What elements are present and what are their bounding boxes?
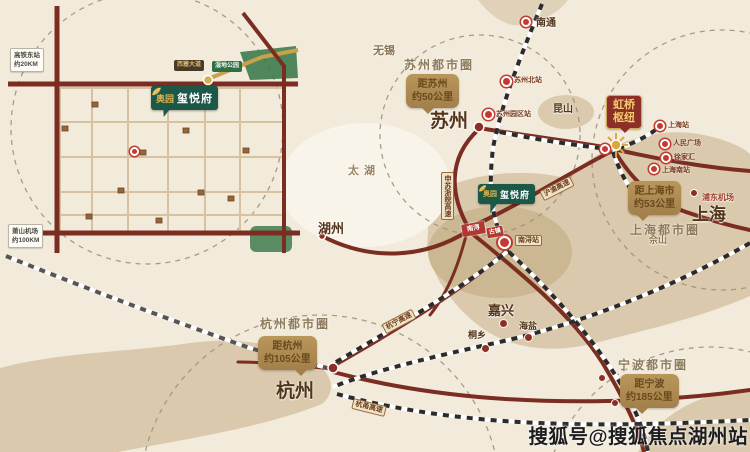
station-dot-shanghai [655,121,665,131]
callout-ningbo-line1: 距宁波 [626,378,673,391]
haiyan-dot [524,333,533,342]
inset-road-plate: 西塞大道 [174,60,204,71]
inset-project-banner: 奥园 玺悦府 [151,86,218,110]
callout-hangzhou-pointer [294,369,308,383]
station-plate-nanxun: 南浔站 [515,235,542,246]
inset-building-icons [62,102,249,223]
callout-suzhou-line2: 约50公里 [412,91,453,104]
station-dot-suzhou-north [501,76,512,87]
pudong-airport-dot [690,189,698,197]
callout-ningbo-pointer [635,407,649,421]
city-label-wuxi: 无锡 [373,42,395,58]
inset-km-station-dist: 约20KM [14,60,40,69]
road-hangzhou-east [333,372,750,401]
callout-shanghai-pointer [636,214,650,228]
location-map: 高铁东站 约20KM 萧山机场 约100KM 西塞大道 湿地公园 奥园 玺悦府 … [0,0,750,452]
station-label-shanghai-south: 上海南站 [662,165,690,175]
city-label-suzhou: 苏州 [430,106,468,133]
callout-shanghai: 距上海市 约53公里 [628,181,681,215]
city-label-pudong-airport: 浦东机场 [702,192,734,203]
callout-shanghai-line1: 距上海市 [634,185,675,198]
nantong-station-dot [521,17,531,27]
callout-ningbo-line2: 约185公里 [626,391,673,404]
hongqiao-hub-box: 虹桥 枢纽 [606,95,642,129]
callout-hangzhou: 距杭州 约105公里 [258,336,317,370]
callout-ningbo: 距宁波 约185公里 [620,374,679,408]
project-banner: 奥园 玺悦府 [478,184,535,204]
leaf-logo-icon [151,86,162,97]
inset-km-airport-dist: 约100KM [12,236,39,245]
station-label-suzhou-park: 苏州园区站 [496,109,531,119]
lake-taihu [280,123,450,247]
inset-km-box-station: 高铁东站 约20KM [10,48,44,72]
callout-suzhou-line1: 距苏州 [412,78,453,91]
city-label-shanghai: 上海 [692,200,726,225]
inset-poi-station-dot [130,147,139,156]
metro-label-suzhou: 苏州都市圈 [404,56,474,73]
callout-hangzhou-line2: 约105公里 [264,353,311,366]
station-label-shanghai: 上海站 [668,120,689,130]
station-label-xujiahui: 徐家汇 [674,152,695,162]
city-label-sheshan: 佘山 [649,233,667,246]
station-dot-hongqiao [600,144,610,154]
station-label-renmin-square: 人民广场 [673,138,701,148]
inset-km-station-name: 高铁东站 [14,51,40,60]
jiaxing-dot [499,319,508,328]
station-dot-suzhou-park [483,109,494,120]
watermark-text: 搜狐号@搜狐焦点湖州站 [528,420,748,449]
station-dot-nanxun [498,236,511,249]
ningbo-rail-dot-2 [611,399,619,407]
station-dot-renmin-square [660,139,670,149]
leaf-logo-icon [478,184,487,193]
station-dot-shanghai-south [649,164,659,174]
station-label-suzhou-north: 苏州北站 [514,75,542,85]
metro-label-ningbo: 宁波都市圈 [618,356,688,373]
callout-hangzhou-line1: 距杭州 [264,340,311,353]
station-dot-xujiahui [661,153,671,163]
callout-suzhou: 距苏州 约50公里 [406,74,459,108]
callout-suzhou-pointer [421,107,435,121]
hub-line2: 枢纽 [613,112,635,125]
metro-label-hangzhou: 杭州都市圈 [260,315,330,332]
city-label-tongxiang: 桐乡 [468,328,486,341]
hub-line1: 虹桥 [613,99,635,112]
hub-pointer [619,127,631,139]
city-label-haiyan: 海盐 [519,319,537,332]
road-plate-shensuzhewan: 申苏浙皖高速 [441,172,454,220]
inset-roundabout-icon [204,76,213,85]
tongxiang-dot [481,344,490,353]
project-banner-name: 玺悦府 [500,188,530,201]
inset-km-box-airport: 萧山机场 约100KM [8,224,43,248]
city-label-jiaxing: 嘉兴 [488,300,514,319]
inset-km-airport-name: 萧山机场 [12,227,39,236]
city-label-nantong: 南通 [536,14,556,29]
city-label-kunshan: 昆山 [553,100,573,115]
lake-label-taihu: 太湖 [348,162,380,178]
inset-park-plate: 湿地公园 [212,61,242,72]
circle-inset [11,0,283,264]
inset-street-grid [8,6,300,253]
inset-banner-name: 玺悦府 [177,90,213,106]
city-label-huzhou: 湖州 [318,218,344,237]
ningbo-rail-dot-1 [598,374,606,382]
callout-shanghai-line2: 约53公里 [634,198,675,211]
